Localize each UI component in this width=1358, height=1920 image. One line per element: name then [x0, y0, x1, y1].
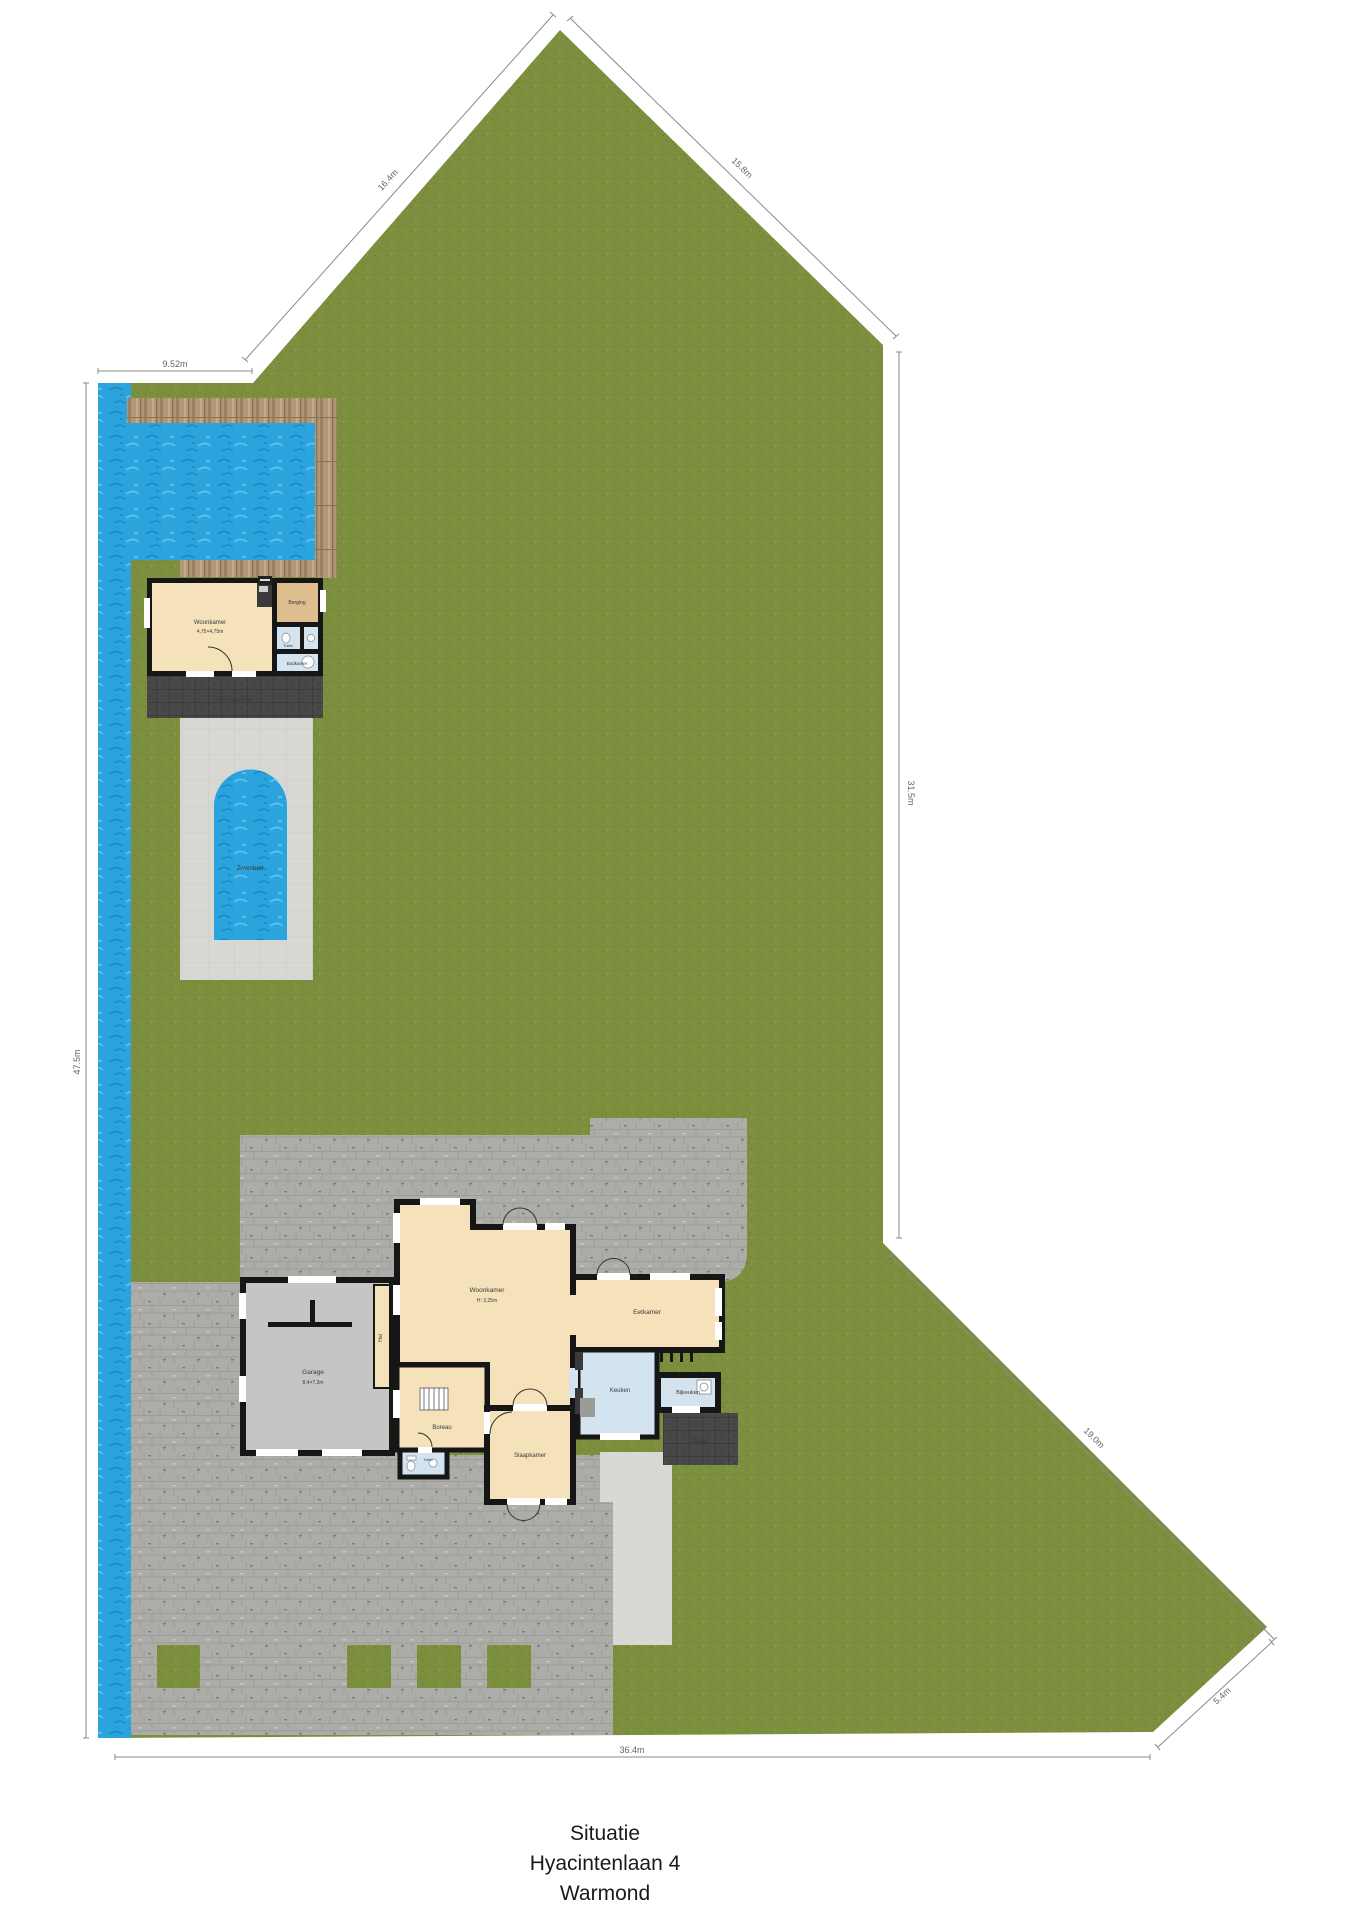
radiator — [690, 1352, 693, 1362]
outbuilding: Woonkamer 4,75×4,75m Berging Toilet Badk… — [144, 576, 326, 677]
outbuilding-badkamer-label: Badkamer — [287, 661, 308, 666]
grass-inset — [417, 1645, 461, 1688]
situation-plan-page: Terras Zwembad Overkapping Woonkamer — [0, 0, 1358, 1920]
garage-sub: 8,4×7,3m — [303, 1380, 324, 1386]
dim-left-vertical: 47.5m — [72, 1049, 82, 1074]
kitchen-block — [580, 1398, 595, 1417]
dim-right-vertical: 31.5m — [906, 780, 916, 805]
overkapping-label: Overkapping — [218, 697, 252, 703]
terras-label: Terras — [692, 1439, 709, 1445]
caption: Situatie Hyacintenlaan 4 Warmond — [530, 1822, 681, 1905]
pool-terrace: Zwembad — [180, 718, 313, 980]
caption-title: Situatie — [570, 1822, 640, 1845]
dim-left-diagonal: 16.4m — [376, 167, 400, 192]
outbuilding-woonkamer-sub: 4,75×4,75m — [197, 629, 224, 635]
water-canal — [98, 383, 131, 1738]
kitchen-counter — [575, 1352, 583, 1370]
radiator — [680, 1352, 683, 1362]
water-basin — [98, 423, 315, 560]
dim-right-diagonal: 15.8m — [730, 156, 755, 181]
outbuilding-berging-label: Berging — [288, 600, 305, 606]
dim-top-left: 9.52m — [162, 359, 187, 369]
outbuilding-toilet-label: Toilet — [283, 643, 293, 648]
woonkamer-sub: H: 3,25m — [477, 1298, 497, 1304]
radiator — [670, 1352, 673, 1362]
bijkeuken-label: Bijkeuken — [676, 1390, 700, 1396]
toilet-tank — [407, 1456, 416, 1460]
eetkamer-label: Eetkamer — [633, 1309, 662, 1316]
overkapping: Overkapping — [147, 676, 323, 718]
garage-label: Garage — [302, 1369, 324, 1376]
radiator — [660, 1352, 663, 1362]
outbuilding-woonkamer — [152, 583, 272, 671]
slaapkamer-label: Slaapkamer — [514, 1453, 546, 1459]
site-plan-svg: Terras Zwembad Overkapping Woonkamer — [0, 0, 1358, 1920]
dim-bottom-right-lower: 5.4m — [1211, 1685, 1232, 1706]
toilet-label: Toilet — [423, 1457, 433, 1462]
toilet-bowl — [407, 1461, 415, 1471]
hal-label: Hal — [378, 1334, 384, 1342]
bureau-label: Bureau — [432, 1425, 451, 1431]
caption-address: Hyacintenlaan 4 — [530, 1852, 681, 1875]
garage-room — [243, 1280, 392, 1453]
grass-inset — [347, 1645, 391, 1688]
swimming-pool — [214, 770, 287, 941]
grass-inset — [487, 1645, 531, 1688]
side-terrace: Terras — [663, 1413, 738, 1465]
toilet-room — [400, 1450, 447, 1477]
woonkamer-label: Woonkamer — [470, 1287, 506, 1294]
grass-inset — [157, 1645, 200, 1688]
zwembad-label: Zwembad — [237, 866, 263, 872]
outbuilding-woonkamer-label: Woonkamer — [194, 620, 226, 626]
dim-bottom: 36.4m — [619, 1745, 644, 1755]
keuken-label: Keuken — [610, 1388, 630, 1394]
caption-city: Warmond — [560, 1882, 650, 1905]
